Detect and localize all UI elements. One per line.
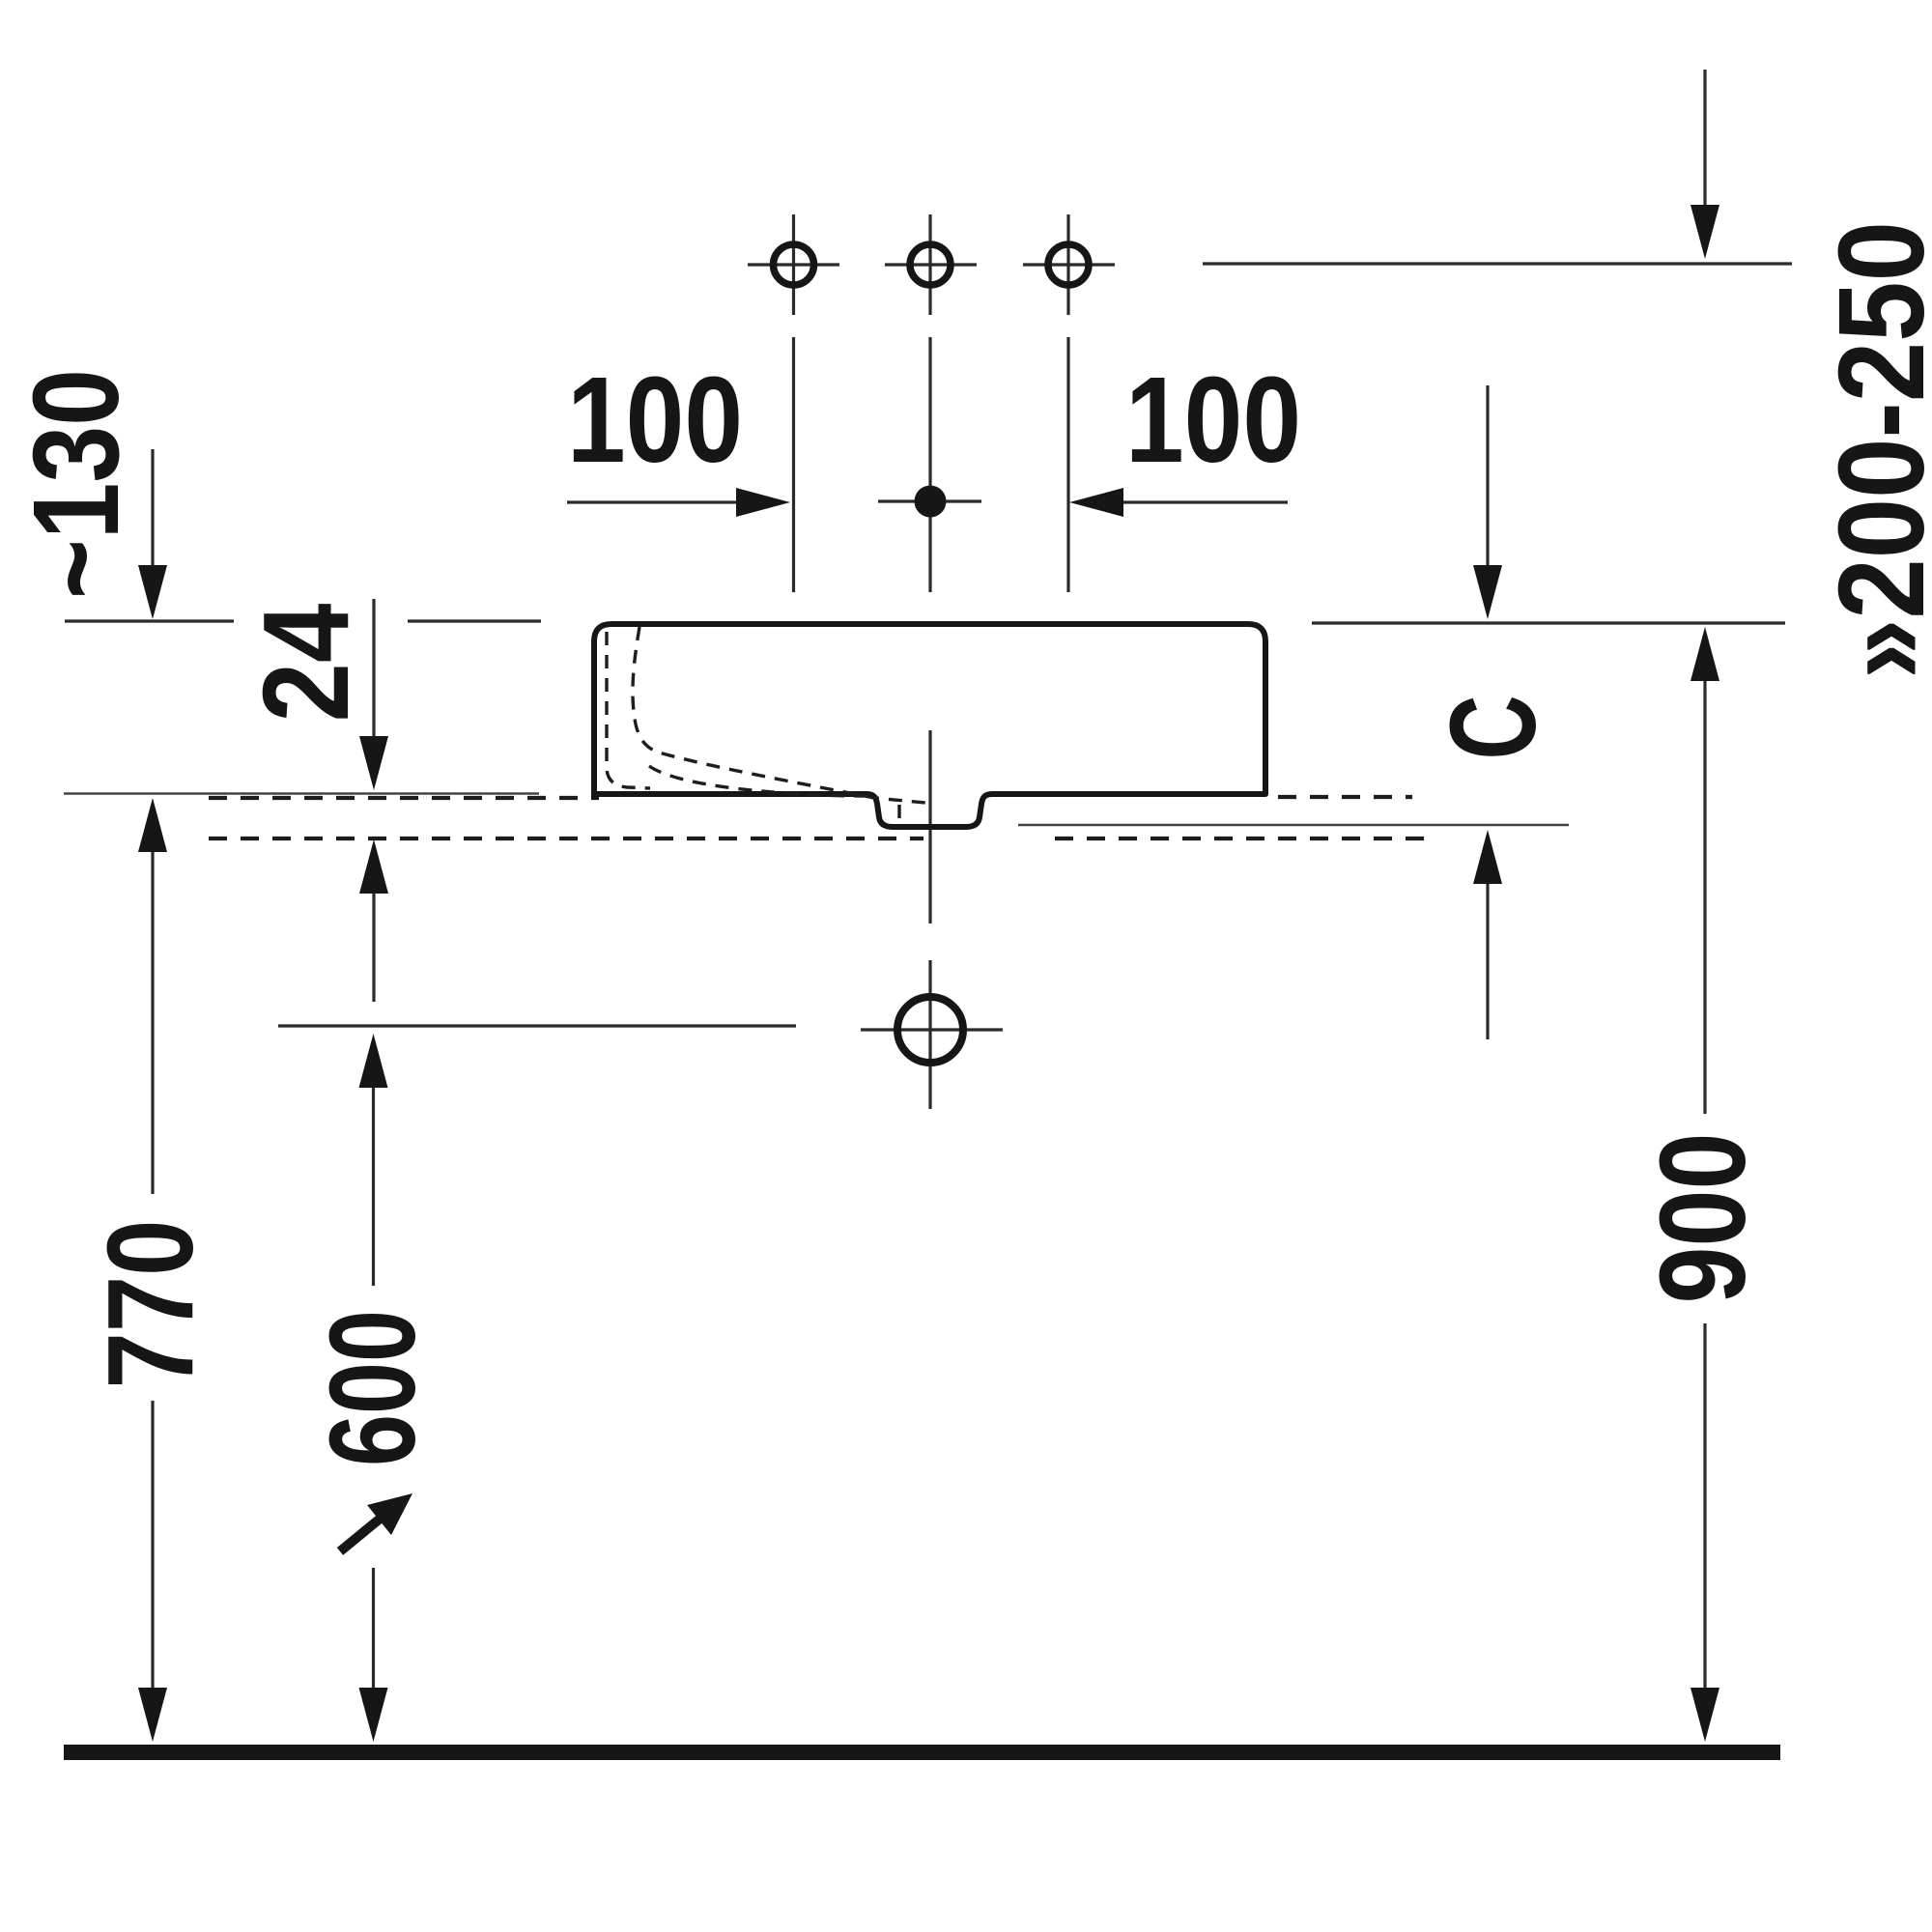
svg-text:100: 100: [567, 352, 743, 488]
svg-text:100: 100: [1125, 352, 1301, 488]
svg-text:600: 600: [304, 1310, 440, 1466]
svg-text:24: 24: [238, 604, 374, 723]
svg-text:770: 770: [82, 1220, 218, 1389]
svg-text:900: 900: [1634, 1133, 1771, 1304]
svg-text:~130: ~130: [8, 369, 144, 599]
svg-text:»200-250: »200-250: [1813, 221, 1932, 679]
svg-text:C: C: [1425, 696, 1561, 760]
